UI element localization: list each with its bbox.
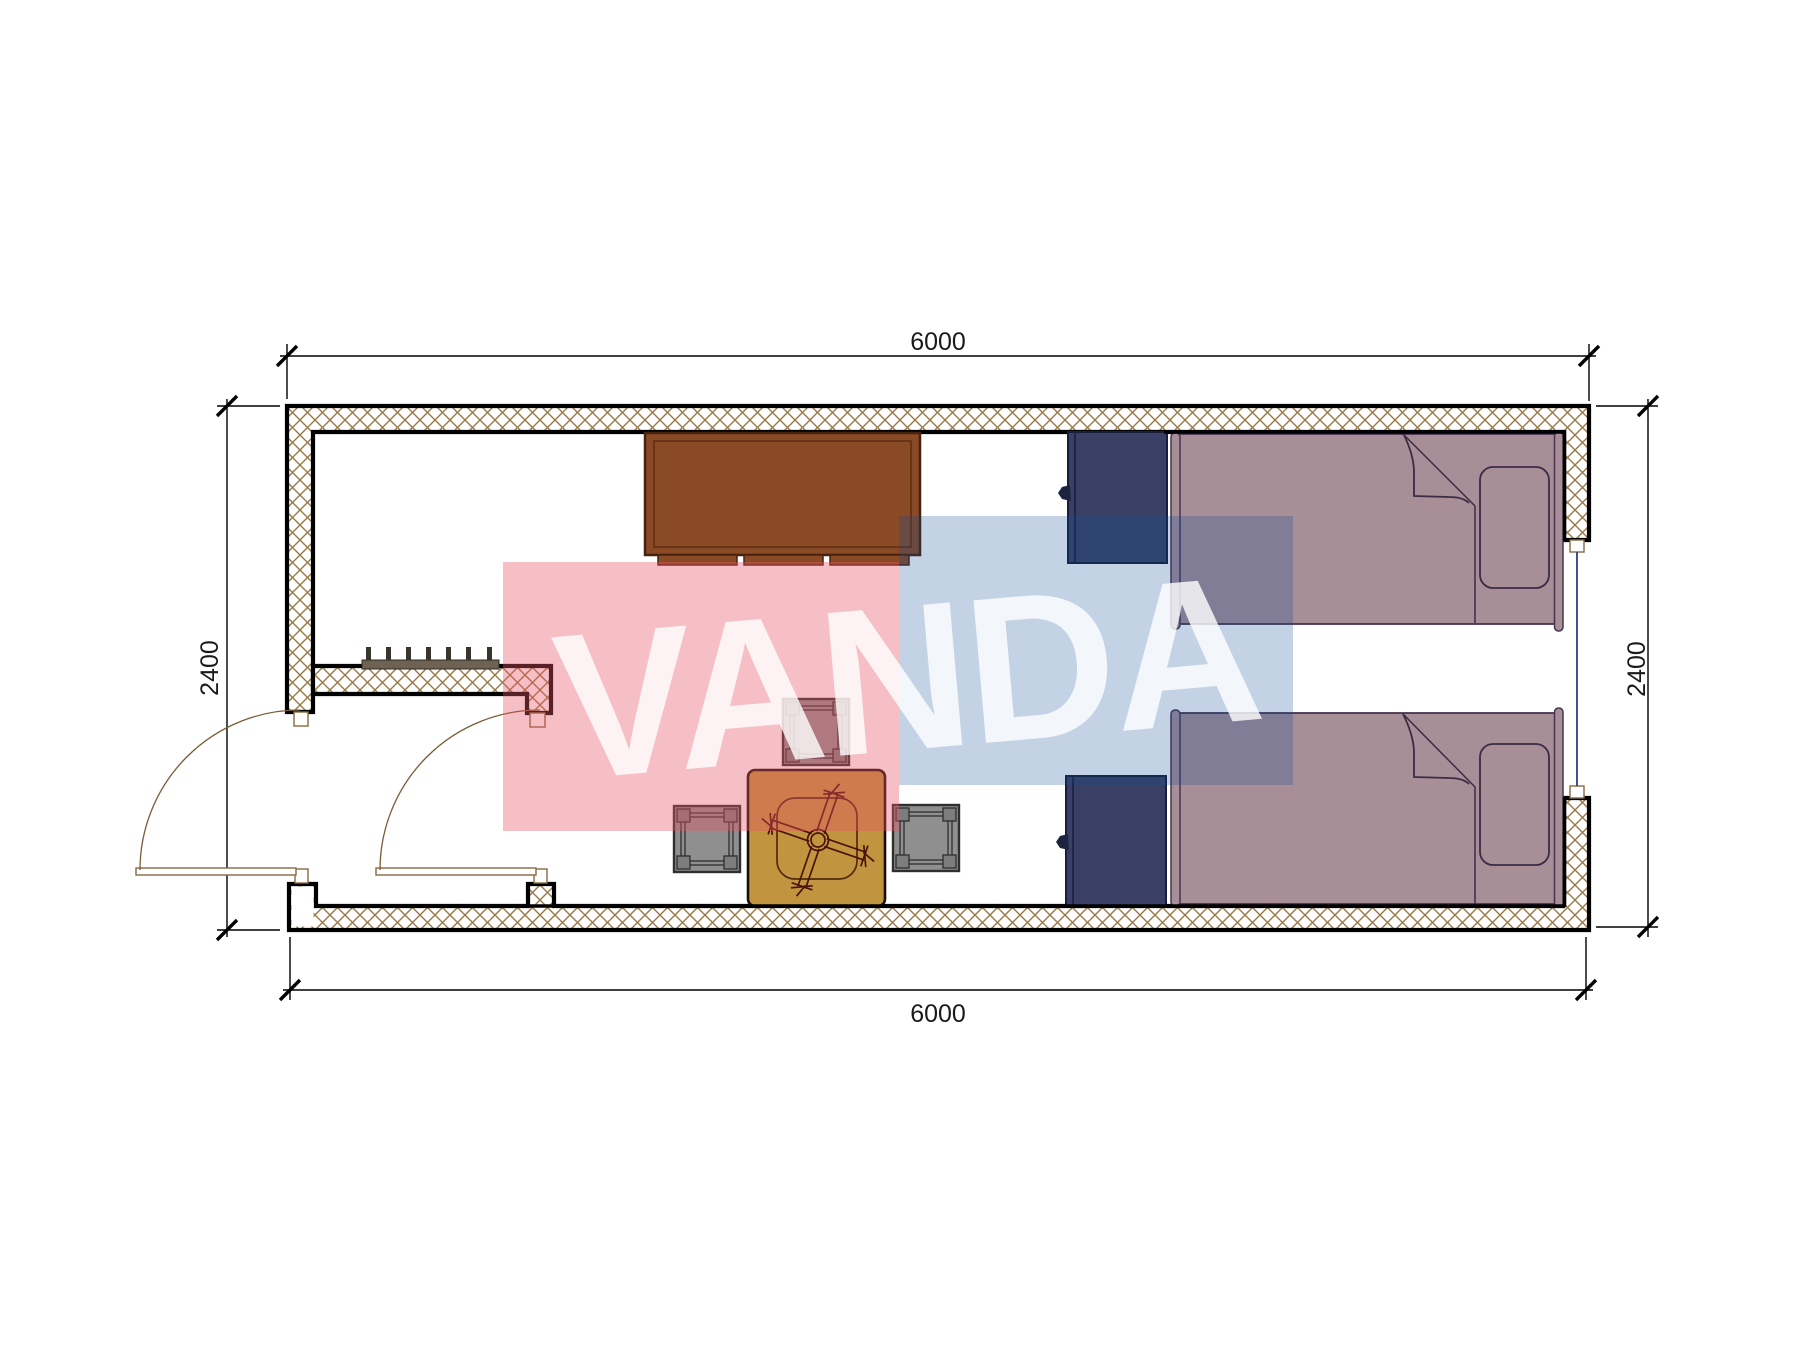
svg-text:2400: 2400 [196, 640, 224, 696]
svg-text:6000: 6000 [910, 328, 966, 356]
svg-text:2400: 2400 [1623, 641, 1651, 697]
svg-text:6000: 6000 [910, 1000, 966, 1028]
